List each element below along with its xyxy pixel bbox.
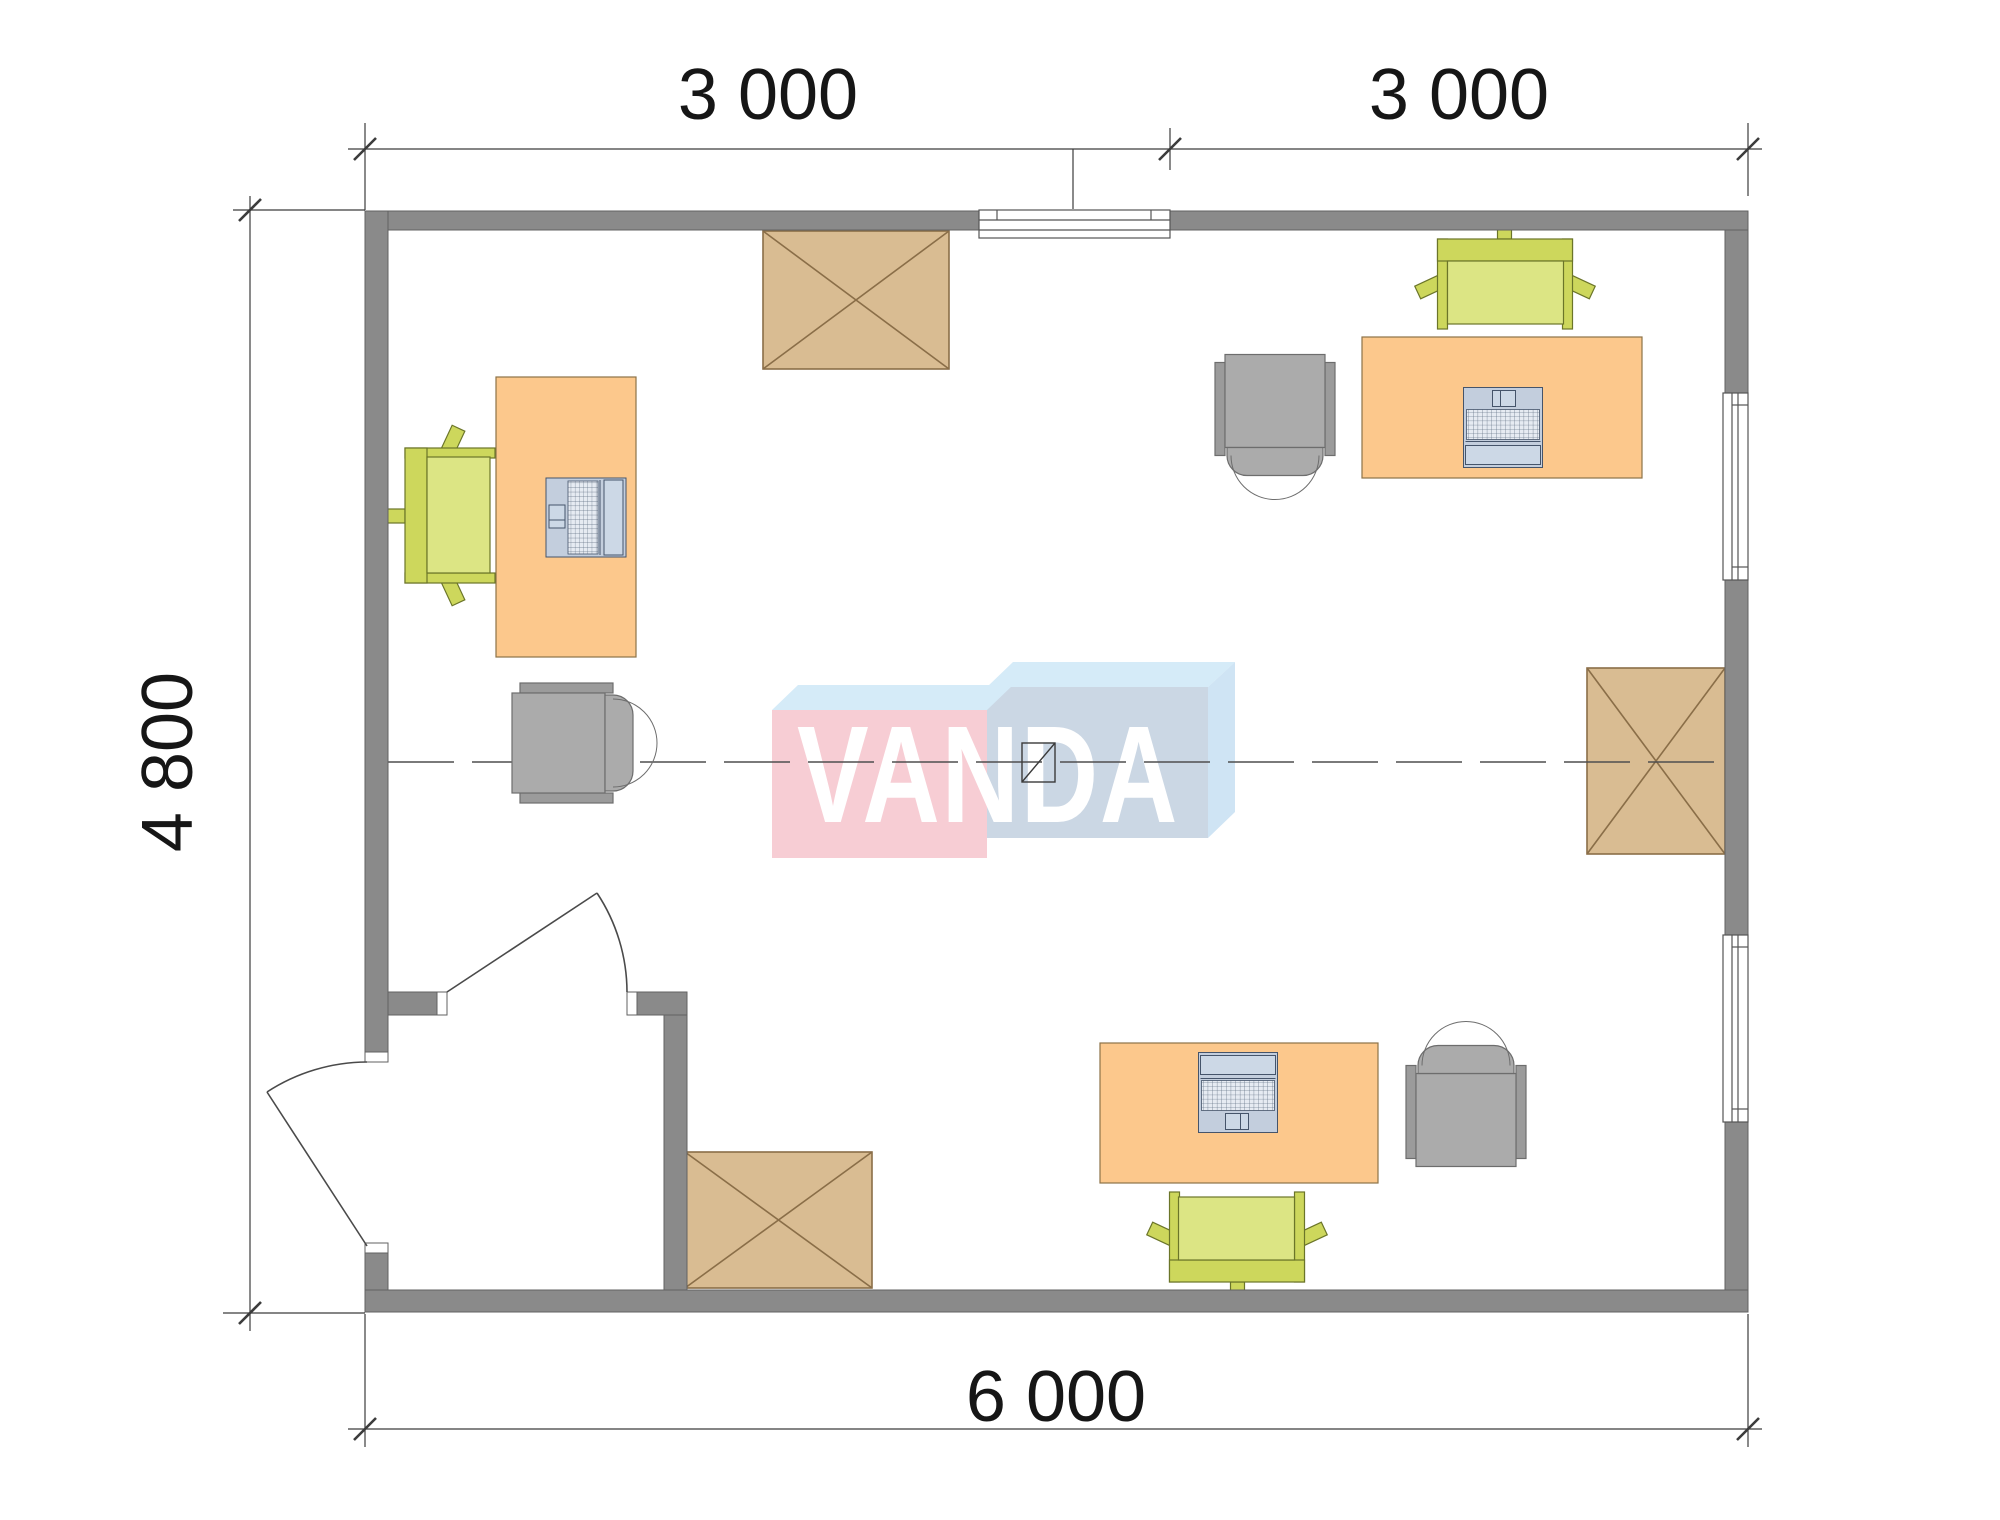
- wall-bottom: [365, 1290, 1748, 1312]
- dim-label-left: 4 800: [128, 672, 208, 852]
- door-leaf: [447, 893, 597, 992]
- partition-vertical: [664, 1015, 687, 1290]
- window-frame: [979, 210, 1170, 238]
- dim-label-bottom: 6 000: [966, 1357, 1146, 1437]
- dim-label-top-right: 3 000: [1369, 55, 1549, 135]
- wall-right-middle: [1725, 580, 1748, 935]
- floor-plan-page: VANDA: [0, 0, 2000, 1520]
- dimension-bottom: 6 000: [348, 1314, 1762, 1447]
- dimension-left: 4 800: [128, 196, 365, 1331]
- workstation-top-right: [1215, 219, 1642, 500]
- door-jamb-cap: [365, 1052, 388, 1062]
- window-right-lower: [1723, 935, 1748, 1122]
- guest-chair-gray: [1406, 1022, 1526, 1167]
- vanda-logo-watermark: VANDA: [772, 662, 1235, 858]
- door-jamb-cap: [365, 1243, 388, 1253]
- window-top: [979, 210, 1170, 238]
- dimension-top: 3 000 3 000: [348, 55, 1762, 210]
- dim-label-top-left: 3 000: [678, 55, 858, 135]
- laptop-icon: [546, 478, 626, 557]
- door-leaf: [267, 1092, 367, 1246]
- logo-right-box-top-face: [987, 662, 1235, 687]
- laptop-icon: [1464, 388, 1543, 468]
- window-right-upper: [1723, 393, 1748, 580]
- floor-plan-canvas: VANDA: [0, 0, 2000, 1520]
- wall-right-lower: [1725, 1122, 1748, 1290]
- laptop-icon: [1199, 1053, 1278, 1133]
- door-swing-arc-icon: [597, 893, 627, 992]
- partition-corner: [637, 992, 687, 1015]
- window-frame: [1723, 393, 1748, 580]
- office-chair-green: [1415, 219, 1595, 329]
- cabinet-bottom-center: [685, 1152, 872, 1288]
- door-partition: [447, 893, 627, 992]
- door-entrance: [267, 1062, 367, 1246]
- door-jamb-cap: [437, 992, 447, 1015]
- cabinet-right: [1587, 668, 1725, 854]
- guest-chair-gray: [1215, 355, 1335, 500]
- office-chair-green: [1147, 1192, 1327, 1302]
- wall-top-right: [1170, 211, 1748, 230]
- logo-text: VANDA: [797, 698, 1179, 852]
- window-frame: [1723, 935, 1748, 1122]
- door-swing-arc-icon: [267, 1062, 367, 1092]
- partition-stub-left: [388, 992, 437, 1015]
- wall-right-upper: [1725, 230, 1748, 393]
- guest-chair-gray: [512, 683, 657, 803]
- workstation-left: [385, 377, 657, 803]
- logo-right-box-side-face: [1208, 662, 1235, 838]
- workstation-bottom: [1100, 1022, 1526, 1303]
- wall-left: [365, 211, 388, 1062]
- door-jamb-cap: [627, 992, 637, 1015]
- cabinet-top-center: [763, 231, 949, 369]
- office-chair-green: [385, 425, 495, 605]
- wall-top-left: [365, 211, 979, 230]
